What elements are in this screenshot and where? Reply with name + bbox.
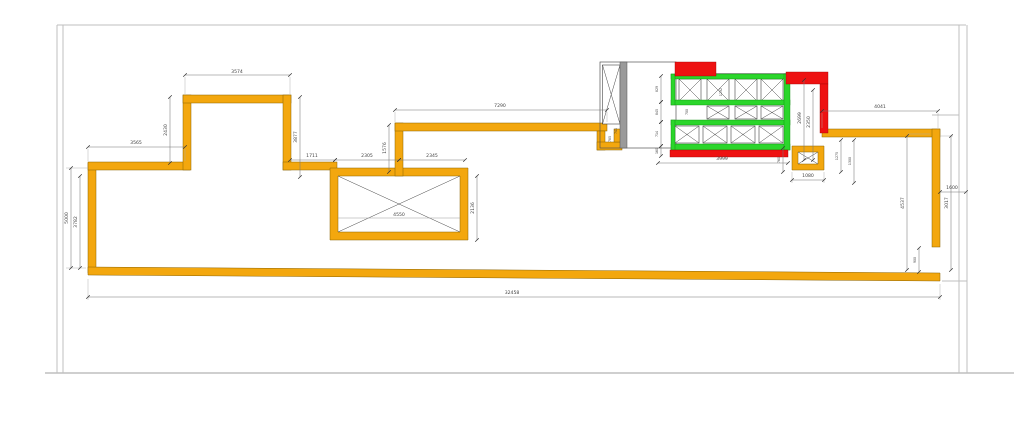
dimension-label: 3999: [716, 156, 728, 162]
dimension-label: 2136: [470, 202, 476, 214]
dimension: 1292: [719, 88, 723, 96]
dimension: 700: [685, 109, 689, 115]
dimension: 7290: [393, 103, 609, 112]
dimension-label: 3017: [944, 197, 950, 209]
elevator-wall: [620, 62, 627, 148]
dimension-label: 5000: [64, 212, 70, 224]
dimension: 741: [614, 128, 618, 134]
dimension-label: 741: [614, 128, 618, 134]
dimension: 1711: [288, 153, 337, 162]
dimension: 1275: [835, 138, 843, 174]
stair-flight-box: [679, 79, 701, 101]
stair-flight-box: [703, 126, 727, 143]
dimension-label: 4041: [874, 104, 886, 110]
dimension-label: 1292: [719, 88, 723, 96]
stair-flight-box: [735, 106, 757, 119]
stair-block: [670, 62, 828, 157]
dimension-label: 2305: [361, 153, 373, 159]
dimension-label: 2430: [163, 124, 169, 136]
dimension: 785: [608, 136, 612, 142]
dimension: 845: [655, 100, 663, 124]
dimension-label: 829: [655, 86, 659, 92]
dimension-label: 3877: [293, 131, 299, 143]
dimension-label: 3782: [73, 216, 79, 228]
dimension-label: 900: [913, 257, 917, 263]
dimension-label: 700: [685, 109, 689, 115]
dimension-label: 160: [655, 148, 659, 154]
drawing-frame: [45, 25, 1014, 373]
stair-flight-box: [761, 79, 783, 101]
dimension: 829: [655, 74, 663, 104]
elevator-shaft: [600, 62, 676, 148]
dimension: 1080: [790, 173, 826, 182]
dimension-label: 4550: [393, 212, 405, 218]
stair-flight-box: [759, 126, 783, 143]
stair-flight-box: [707, 106, 729, 119]
dimension: 2430: [163, 95, 172, 165]
dimension: 4537: [900, 134, 909, 272]
dimension-label: 1711: [306, 153, 318, 159]
dimension-label: 7290: [494, 103, 506, 109]
dimension: 2345: [397, 153, 467, 162]
dimension: 32458: [86, 290, 942, 299]
sloped-bottom-wall: [88, 267, 940, 281]
dimension-label: 845: [655, 109, 659, 115]
dimension-label: 1275: [835, 152, 839, 160]
stair-flight-box: [707, 79, 729, 101]
dimension-label: 2345: [426, 153, 438, 159]
void-opening-marks: [338, 152, 818, 232]
dimension-label: 3574: [231, 69, 243, 75]
dimension: 3782: [73, 174, 82, 270]
dimension: 160: [655, 144, 663, 158]
dimension: 900: [913, 246, 921, 274]
dimension: 4550: [393, 212, 405, 218]
dimension: 1300: [848, 138, 856, 185]
dimensions: 3574243035653877171123052345729015762136…: [64, 69, 968, 300]
dimension-label: 4537: [900, 197, 906, 209]
dimension-label: 1300: [848, 157, 852, 165]
stair-flight-marks: [675, 79, 783, 143]
dimension-label: 760: [777, 157, 781, 163]
dimension: 1576: [382, 123, 391, 174]
dimension: 1600: [938, 185, 968, 194]
dimension: 3565: [86, 140, 187, 149]
dimension-label: 3565: [130, 140, 142, 146]
floor-plan: 3574243035653877171123052345729015762136…: [0, 0, 1024, 424]
dimension-label: 1576: [382, 142, 388, 154]
dimension-label: 32458: [505, 290, 520, 296]
dimension: 4041: [820, 104, 940, 113]
stair-flight-box: [675, 126, 699, 143]
floor-plan-canvas: 3574243035653877171123052345729015762136…: [0, 0, 1024, 424]
dimension-label: 2350: [806, 116, 812, 128]
dimension: 3017: [944, 134, 953, 272]
dimension: 714: [655, 120, 663, 148]
dimension: 2305: [333, 153, 401, 162]
dimension-label: 714: [655, 131, 659, 137]
orange-walls: [88, 95, 940, 281]
dimension: 3999: [656, 156, 790, 165]
dimension: 2136: [470, 174, 479, 242]
dimension-label: 785: [608, 136, 612, 142]
dimension: 3574: [183, 69, 292, 77]
stair-flight-box: [735, 79, 757, 101]
dimension-label: 1080: [802, 173, 814, 179]
stair-flight-box: [731, 126, 755, 143]
dimension-label: 1600: [946, 185, 958, 191]
stair-flight-box: [761, 106, 783, 119]
dimension: 5000: [64, 166, 73, 270]
dimension-label: 2699: [797, 112, 803, 124]
